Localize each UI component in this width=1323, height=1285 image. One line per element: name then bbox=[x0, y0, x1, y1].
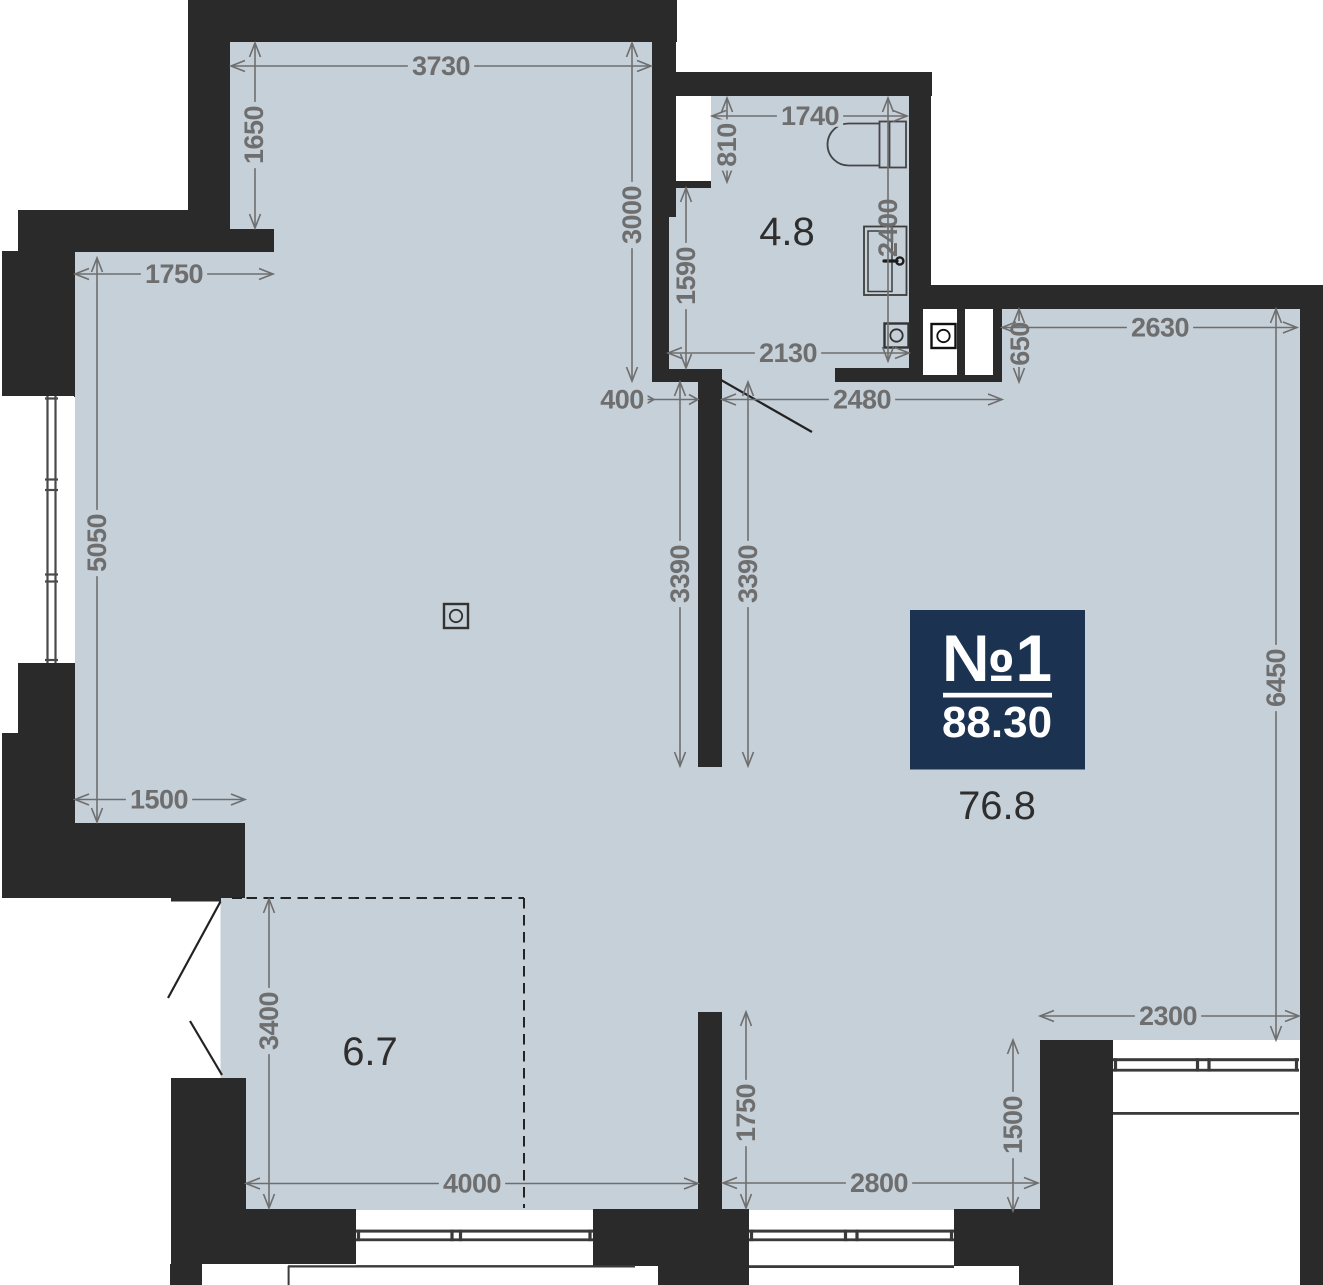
svg-text:1590: 1590 bbox=[671, 247, 701, 305]
svg-text:1650: 1650 bbox=[239, 106, 269, 164]
svg-text:6450: 6450 bbox=[1261, 649, 1291, 707]
svg-text:76.8: 76.8 bbox=[958, 784, 1036, 828]
svg-text:1500: 1500 bbox=[998, 1096, 1028, 1154]
svg-text:88.30: 88.30 bbox=[942, 698, 1052, 747]
svg-text:6.7: 6.7 bbox=[342, 1030, 398, 1074]
svg-text:810: 810 bbox=[712, 123, 742, 167]
svg-text:650: 650 bbox=[1005, 322, 1035, 366]
svg-text:2130: 2130 bbox=[759, 338, 817, 368]
svg-text:400: 400 bbox=[600, 385, 644, 415]
svg-text:1500: 1500 bbox=[130, 785, 188, 815]
svg-text:1740: 1740 bbox=[781, 101, 839, 131]
svg-text:3000: 3000 bbox=[617, 186, 647, 244]
svg-text:3390: 3390 bbox=[733, 545, 763, 603]
svg-text:2800: 2800 bbox=[850, 1168, 908, 1198]
svg-text:1750: 1750 bbox=[145, 259, 203, 289]
svg-text:3400: 3400 bbox=[254, 992, 284, 1050]
svg-text:2480: 2480 bbox=[833, 385, 891, 415]
svg-text:2630: 2630 bbox=[1131, 313, 1189, 343]
svg-text:3730: 3730 bbox=[412, 51, 470, 81]
svg-text:4000: 4000 bbox=[443, 1169, 501, 1199]
svg-text:2400: 2400 bbox=[873, 199, 903, 257]
svg-text:№1: №1 bbox=[942, 621, 1052, 695]
svg-text:4.8: 4.8 bbox=[759, 210, 815, 254]
svg-text:5050: 5050 bbox=[82, 514, 112, 572]
svg-text:2300: 2300 bbox=[1139, 1001, 1197, 1031]
svg-text:1750: 1750 bbox=[731, 1084, 761, 1142]
svg-text:3390: 3390 bbox=[665, 545, 695, 603]
